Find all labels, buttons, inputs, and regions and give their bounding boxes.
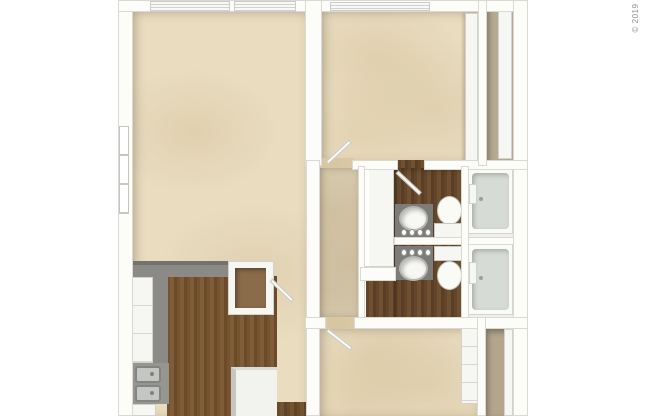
- bathtub-2-drain: [479, 276, 483, 280]
- sliding-closet-door-bottom-right: [504, 329, 513, 416]
- sink-drain-2: [150, 391, 154, 395]
- bedroom-top-floor: [322, 10, 478, 162]
- wall-bedroom-closet-bottom: [477, 317, 486, 416]
- wall-h2-right: [354, 317, 528, 329]
- wall-right: [513, 0, 528, 416]
- bathroom-bottom-floor-extension: [366, 281, 394, 318]
- vanity-knobs-2: [400, 248, 432, 256]
- doorway-bedroom-bottom: [326, 317, 354, 329]
- doorway-bathroom-1: [398, 160, 424, 168]
- sink-drain-1: [150, 372, 154, 376]
- wall-h2-left: [305, 317, 326, 329]
- linen-closet-door: [364, 166, 394, 267]
- wardrobe-bedroom-top: [465, 13, 478, 162]
- wall-bath-tub: [461, 166, 469, 320]
- bathtub-1-fixture: [469, 184, 477, 204]
- wall-h1-right: [424, 160, 528, 170]
- side-window: [119, 126, 129, 214]
- kitchen-sink-basin-1: [135, 366, 161, 383]
- bathtub-1-basin: [472, 173, 509, 229]
- dresser-bedroom-bottom: [461, 328, 478, 404]
- entry-flooring: [277, 402, 307, 416]
- wall-linen-bottom: [360, 267, 396, 281]
- wall-bath-divider: [394, 237, 514, 245]
- window-blinds-bedroom: [330, 2, 430, 11]
- wall-bedroom-closet-top: [478, 0, 487, 166]
- wall-mid-upper: [305, 0, 322, 166]
- sliding-closet-door-top-right: [498, 5, 512, 159]
- window-blinds-living-1: [150, 1, 230, 12]
- toilet-2-tank: [434, 246, 464, 261]
- window-blinds-living-2: [234, 1, 296, 12]
- toilet-1-bowl: [437, 196, 462, 225]
- kitchen-counter: [133, 261, 231, 277]
- toilet-1-tank: [434, 223, 464, 238]
- bathtub-1-drain: [479, 197, 483, 201]
- bathtub-2-fixture: [469, 262, 477, 284]
- bathtub-2-basin: [472, 249, 509, 310]
- doorway-bedroom-top: [320, 158, 354, 168]
- kitchen-island: [231, 367, 277, 416]
- kitchen-counter-left: [152, 277, 168, 364]
- vanity-knobs-1: [400, 228, 432, 236]
- upper-cabinet-interior: [235, 268, 266, 308]
- toilet-2-bowl: [437, 261, 462, 290]
- floor-plan-canvas: © 2019: [0, 0, 652, 416]
- kitchen-sink-basin-2: [135, 385, 161, 402]
- vanity-sink-2: [399, 256, 428, 281]
- copyright-watermark: © 2019: [630, 0, 642, 48]
- wall-hallway-right: [358, 166, 365, 318]
- wall-mid-lower: [306, 160, 320, 416]
- hallway-floor: [320, 166, 360, 318]
